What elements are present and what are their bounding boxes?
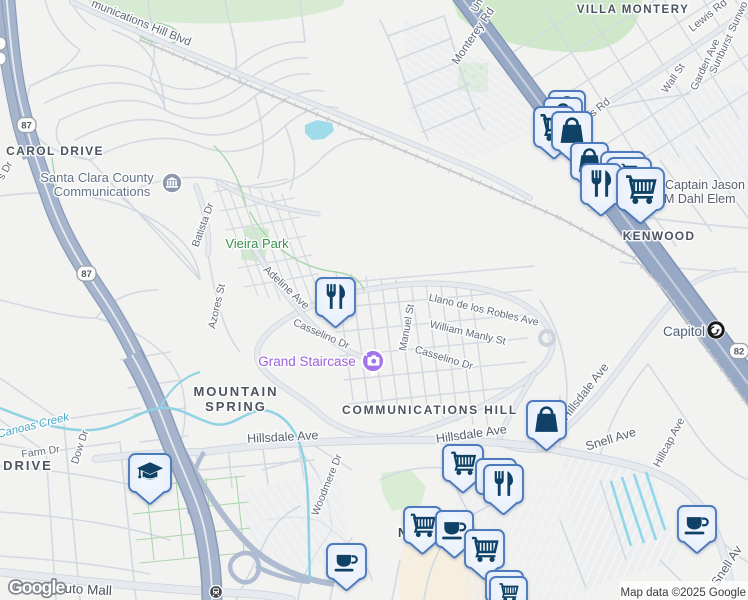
svg-text:COMMUNICATIONS HILL: COMMUNICATIONS HILL <box>342 403 518 417</box>
svg-text:82: 82 <box>734 347 745 358</box>
svg-text:M Dahl Elem: M Dahl Elem <box>664 192 736 206</box>
svg-text:Captain Jason: Captain Jason <box>665 178 745 192</box>
svg-text:SPRING: SPRING <box>205 399 267 414</box>
svg-text:DRIVE: DRIVE <box>3 458 53 473</box>
svg-text:KENWOOD: KENWOOD <box>623 229 695 243</box>
svg-text:MOUNTAIN: MOUNTAIN <box>193 384 278 399</box>
svg-text:Google: Google <box>9 577 66 597</box>
svg-text:Grand Staircase: Grand Staircase <box>258 354 356 369</box>
svg-text:Capitol: Capitol <box>663 324 705 339</box>
svg-text:uto Mall: uto Mall <box>64 581 112 598</box>
svg-text:87: 87 <box>81 269 92 280</box>
svg-text:Santa Clara County: Santa Clara County <box>40 170 154 185</box>
svg-text:Map data ©2025 Google: Map data ©2025 Google <box>621 587 746 599</box>
svg-text:Vieira Park: Vieira Park <box>225 236 289 251</box>
svg-text:VILLA MONTERY: VILLA MONTERY <box>577 4 690 16</box>
svg-text:87: 87 <box>21 121 32 132</box>
svg-text:CAROL DRIVE: CAROL DRIVE <box>6 144 104 158</box>
svg-text:Communications: Communications <box>54 184 151 199</box>
